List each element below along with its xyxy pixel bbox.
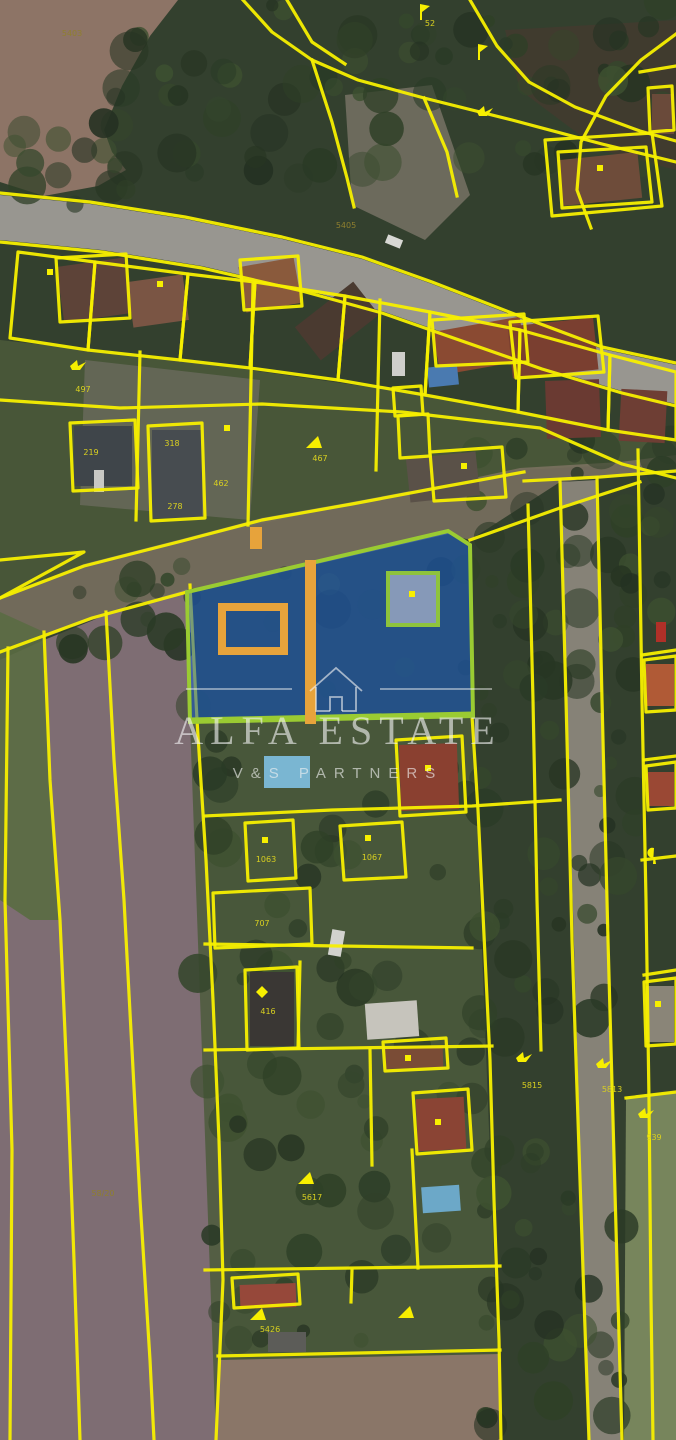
parcel-number-label: 318 (164, 439, 179, 448)
building-marker-icon (409, 591, 415, 597)
parcel-number-label: 5426 (260, 1325, 280, 1334)
building-marker-icon (597, 165, 603, 171)
parcel-number-label: 278 (167, 502, 182, 511)
highlighted-building[interactable] (388, 573, 438, 625)
parcel-number-label: 5403 (62, 29, 82, 38)
building-marker-icon (435, 1119, 441, 1125)
building-marker-icon (461, 463, 467, 469)
parcel-number-label: 5815 (522, 1081, 542, 1090)
cadastral-aerial-map: 5403525405497219318462278467106310677074… (0, 0, 676, 1440)
orange-annotation-bar (305, 560, 316, 724)
parcel-number-label: 5813 (602, 1085, 622, 1094)
map-viewport[interactable]: 5403525405497219318462278467106310677074… (0, 0, 676, 1440)
building-marker-icon (365, 835, 371, 841)
building-marker-icon (405, 1055, 411, 1061)
parcel-number-label: 58/20 (91, 1189, 114, 1198)
parcel-number-label: 1067 (362, 853, 382, 862)
parcel-number-label: 5405 (336, 221, 356, 230)
parcel-number-label: 939 (646, 1133, 661, 1142)
parcel-number-label: 462 (213, 479, 228, 488)
parcel-number-label: 1063 (256, 855, 276, 864)
building-marker-icon (655, 1001, 661, 1007)
building-marker-icon (157, 281, 163, 287)
building-marker-icon (224, 425, 230, 431)
parcel-number-label: 707 (254, 919, 269, 928)
parcel-number-label: 52 (425, 19, 435, 28)
parcel-number-label: 497 (75, 385, 90, 394)
parcel-number-label: 467 (312, 454, 327, 463)
watermark-subbrand-text: V&S PARTNERS (233, 765, 443, 782)
orange-annotation-tick (250, 527, 262, 549)
watermark-brand-text: ALFA ESTATE (174, 708, 502, 753)
parcel-number-label: 219 (83, 448, 98, 457)
parcel-number-label: 416 (260, 1007, 275, 1016)
parcel-number-label: 5617 (302, 1193, 322, 1202)
building-marker-icon (47, 269, 53, 275)
building-marker-icon (262, 837, 268, 843)
